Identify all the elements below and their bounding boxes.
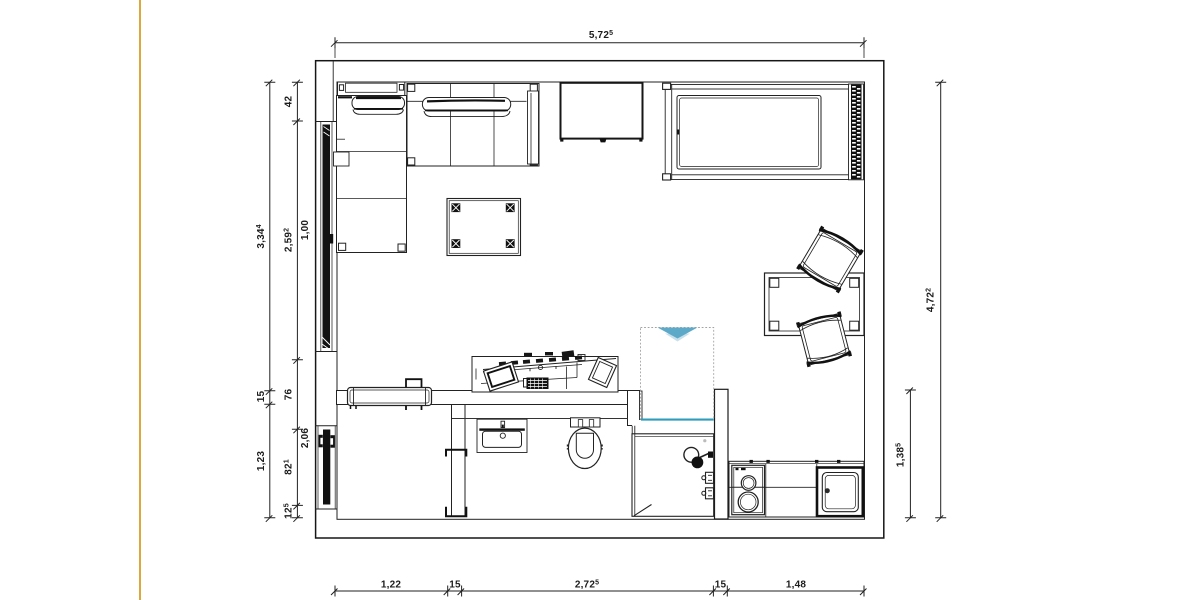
svg-text:15: 15 <box>449 580 461 591</box>
svg-text:42: 42 <box>284 96 295 108</box>
svg-text:1,48: 1,48 <box>786 580 807 591</box>
svg-text:1,00: 1,00 <box>300 220 311 241</box>
svg-text:15: 15 <box>256 391 267 403</box>
svg-text:1,23: 1,23 <box>256 451 267 472</box>
svg-text:76: 76 <box>284 389 295 401</box>
svg-text:1,22: 1,22 <box>381 580 402 591</box>
svg-text:15: 15 <box>715 580 727 591</box>
svg-text:2,06: 2,06 <box>300 428 311 449</box>
